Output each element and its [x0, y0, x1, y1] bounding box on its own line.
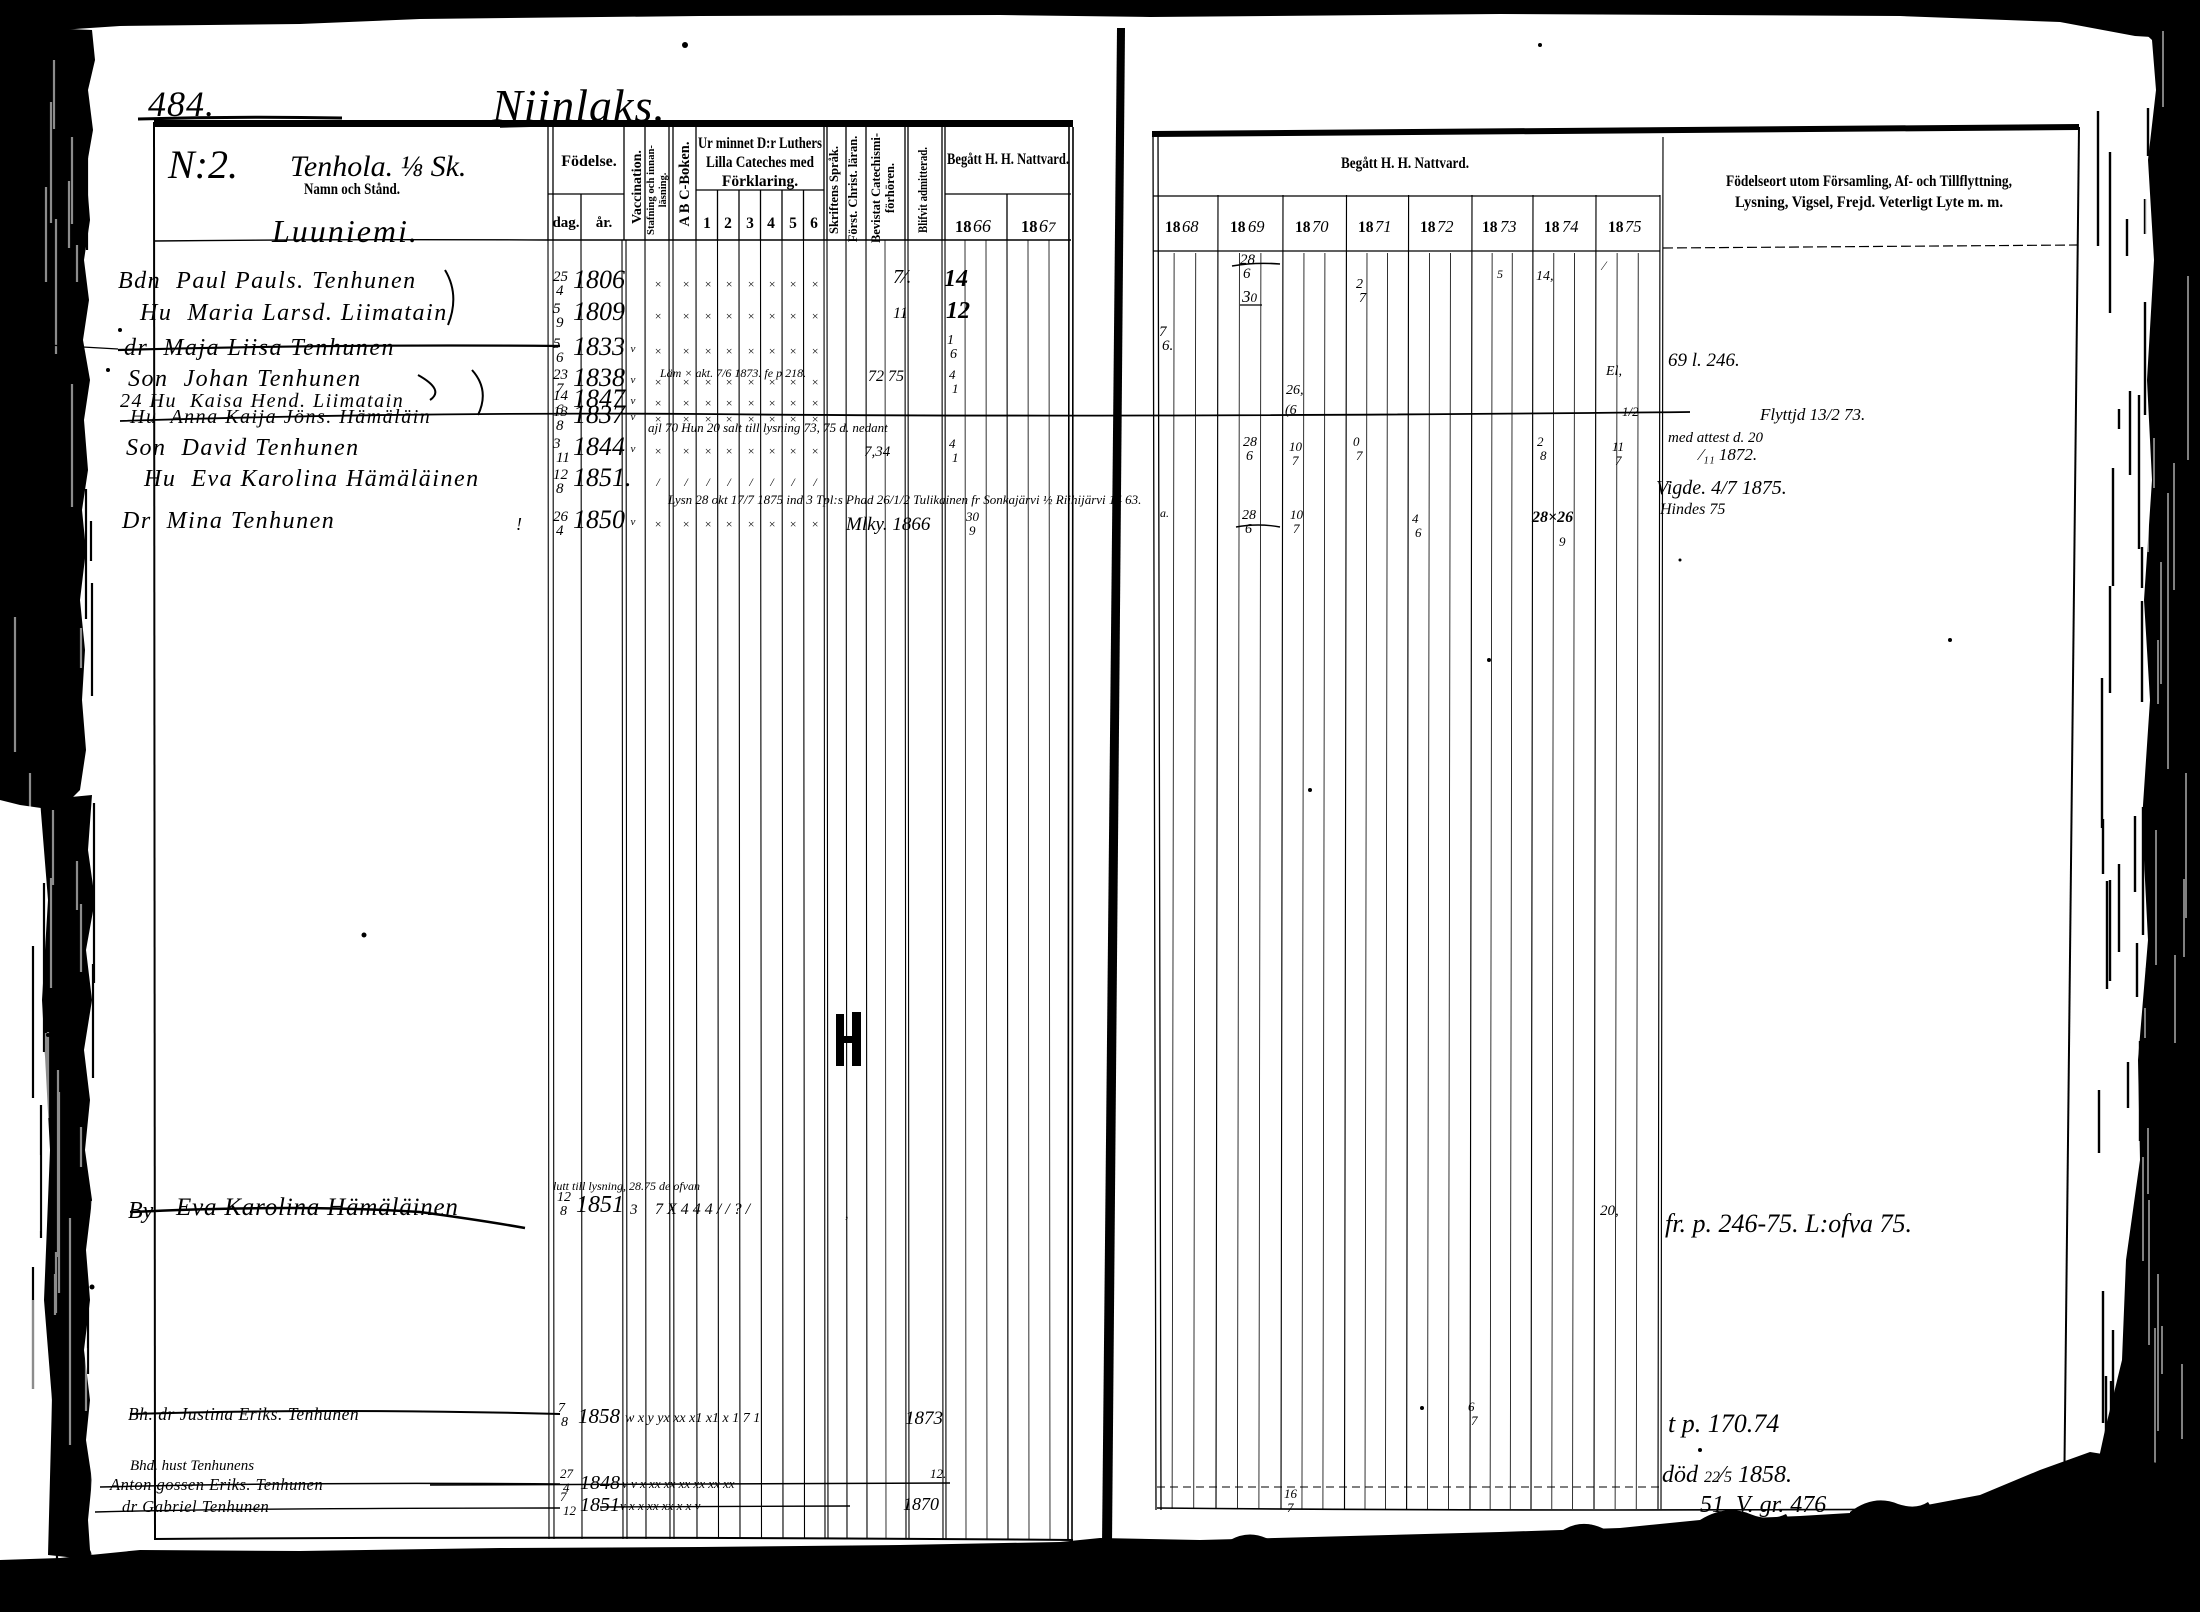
svg-text:förhören.: förhören. — [883, 163, 897, 213]
svg-text:×: × — [725, 444, 733, 458]
svg-text:30: 30 — [965, 509, 980, 524]
svg-text:dr Gabriel Tenhunen: dr Gabriel Tenhunen — [122, 1497, 269, 1516]
svg-text:7: 7 — [1293, 521, 1300, 536]
svg-text:66: 66 — [973, 216, 991, 236]
svg-text:v: v — [631, 443, 636, 455]
svg-text:Lysning, Vigsel, Frejd. Veterl: Lysning, Vigsel, Frejd. Veterligt Lyte m… — [1735, 194, 2003, 211]
svg-text:×: × — [811, 344, 819, 358]
svg-text:A B C-Boken.: A B C-Boken. — [677, 141, 693, 226]
svg-text:v: v — [631, 374, 636, 386]
svg-text:×: × — [747, 444, 755, 458]
svg-text:×: × — [725, 309, 733, 323]
svg-text:×: × — [654, 396, 662, 410]
svg-text:6: 6 — [556, 350, 564, 366]
svg-text:18: 18 — [1021, 217, 1038, 236]
svg-text:6: 6 — [1246, 449, 1253, 464]
svg-text:×: × — [654, 344, 662, 358]
svg-text:72: 72 — [1437, 217, 1454, 236]
svg-text:×: × — [811, 396, 819, 410]
svg-text:×: × — [768, 344, 776, 358]
svg-text:×: × — [654, 277, 662, 291]
svg-text:×: × — [704, 444, 712, 458]
svg-text:Blifvit admitterad.: Blifvit admitterad. — [915, 147, 930, 233]
svg-text:v: v — [631, 411, 636, 423]
svg-text:Son Johan Tenhunen: Son Johan Tenhunen — [128, 366, 362, 392]
svg-text:1873: 1873 — [905, 1408, 943, 1429]
svg-text:4: 4 — [556, 523, 564, 539]
svg-text:Vigde. 4/7 1875.: Vigde. 4/7 1875. — [1656, 477, 1787, 499]
svg-text:12: 12 — [946, 298, 970, 324]
svg-text:×: × — [747, 396, 755, 410]
svg-text:7⁄.: 7⁄. — [893, 266, 911, 288]
svg-text:×: × — [768, 396, 776, 410]
svg-text:×: × — [704, 309, 712, 323]
svg-text:1851: 1851 — [580, 1494, 620, 1516]
svg-text:×: × — [811, 277, 819, 291]
svg-text:10: 10 — [1289, 439, 1303, 454]
svg-text:Först. Christ. läran.: Först. Christ. läran. — [846, 136, 860, 243]
svg-text:Vaccination.: Vaccination. — [630, 150, 645, 224]
svg-text:(6: (6 — [1285, 403, 1297, 418]
svg-text:×: × — [682, 277, 690, 291]
svg-text:14,: 14, — [1536, 269, 1554, 284]
svg-text:×: × — [725, 396, 733, 410]
svg-text:6: 6 — [1243, 266, 1251, 282]
svg-text:×: × — [725, 517, 733, 531]
svg-text:7: 7 — [1292, 453, 1299, 468]
svg-text:30: 30 — [1241, 287, 1258, 306]
svg-text:5: 5 — [1497, 267, 1503, 281]
svg-text:18: 18 — [1295, 219, 1311, 236]
svg-text:1806: 1806 — [573, 265, 625, 294]
svg-text:75: 75 — [1625, 217, 1642, 236]
svg-text:1833: 1833 — [573, 332, 625, 361]
svg-text:11: 11 — [556, 450, 570, 466]
svg-text:69: 69 — [1248, 217, 1265, 236]
svg-text:Hindes 75: Hindes 75 — [1659, 501, 1725, 518]
svg-text:1870: 1870 — [903, 1494, 939, 1514]
svg-text:×: × — [654, 444, 662, 458]
svg-text:68: 68 — [1182, 217, 1199, 236]
svg-text:Läm × akt. 7/6 1873. fe p 218: Läm × akt. 7/6 1873. fe p 218. — [659, 366, 806, 380]
svg-text:0: 0 — [1353, 434, 1360, 449]
svg-text:1851: 1851 — [576, 1192, 624, 1218]
svg-text:v: v — [631, 343, 636, 355]
svg-text:Namn och Stånd.: Namn och Stånd. — [304, 181, 400, 198]
svg-text:×: × — [747, 517, 755, 531]
svg-text:26,: 26, — [1286, 383, 1304, 398]
svg-text:Dr Mina Tenhunen: Dr Mina Tenhunen — [121, 508, 335, 534]
svg-text:27: 27 — [560, 1466, 574, 1481]
svg-text:t p. 170.74: t p. 170.74 — [1668, 1409, 1779, 1438]
svg-text:Ur minnet D:r Luthers: Ur minnet D:r Luthers — [698, 135, 822, 152]
svg-text:Födelseort utom Församling, Af: Födelseort utom Församling, Af- och Till… — [1726, 173, 2012, 190]
svg-text:12: 12 — [563, 1503, 577, 1518]
svg-text:Niinlaks.: Niinlaks. — [491, 80, 666, 131]
svg-text:med attest d. 20: med attest d. 20 — [1668, 430, 1763, 446]
svg-text:18: 18 — [1358, 219, 1374, 236]
svg-text:2: 2 — [1537, 434, 1544, 449]
svg-text:×: × — [682, 344, 690, 358]
svg-text:73: 73 — [1500, 217, 1517, 236]
svg-text:El,: El, — [1605, 364, 1622, 379]
svg-text:5: 5 — [789, 215, 797, 232]
svg-text:Lysn 28 okt 17/7 1875 ind 3 Tp: Lysn 28 okt 17/7 1875 ind 3 Tpl:s Phad 2… — [667, 492, 1141, 507]
svg-text:28: 28 — [1242, 508, 1256, 523]
svg-text:Bhd. hust Tenhunens: Bhd. hust Tenhunens — [130, 1458, 254, 1474]
svg-text:×: × — [768, 444, 776, 458]
svg-text:1: 1 — [952, 450, 959, 465]
svg-text:1/2: 1/2 — [1622, 404, 1639, 419]
svg-text:6: 6 — [1415, 525, 1422, 540]
svg-text:Flyttjd 13/2 73.: Flyttjd 13/2 73. — [1759, 405, 1865, 424]
svg-text:69 l. 246.: 69 l. 246. — [1668, 350, 1740, 371]
svg-text:×: × — [747, 309, 755, 323]
svg-text:Mlky. 1866: Mlky. 1866 — [845, 514, 931, 535]
svg-text:4: 4 — [1412, 511, 1419, 526]
svg-text:×: × — [811, 517, 819, 531]
svg-text:70: 70 — [1312, 217, 1329, 236]
svg-text:,: , — [845, 1207, 849, 1222]
svg-text:7: 7 — [1359, 291, 1367, 306]
svg-text:×: × — [682, 309, 690, 323]
svg-text:4: 4 — [949, 367, 956, 382]
svg-text:18: 18 — [955, 217, 972, 236]
svg-text:×: × — [704, 277, 712, 291]
svg-text:18: 18 — [1482, 219, 1498, 236]
svg-text:9: 9 — [1559, 534, 1566, 549]
svg-text:3: 3 — [629, 1202, 638, 1218]
svg-text:74: 74 — [1562, 217, 1579, 236]
svg-text:10: 10 — [1290, 507, 1304, 522]
svg-text:fr. p. 246-75. L:ofva 75.: fr. p. 246-75. L:ofva 75. — [1665, 1209, 1912, 1238]
svg-text:4: 4 — [767, 215, 775, 232]
svg-text:×: × — [704, 396, 712, 410]
svg-text:6: 6 — [1468, 1399, 1475, 1414]
svg-text:71: 71 — [1375, 217, 1392, 236]
svg-text:7: 7 — [558, 1401, 566, 1416]
svg-text:7 X 4 4 4 / / ? /: 7 X 4 4 4 / / ? / — [655, 1201, 752, 1218]
svg-text:×: × — [789, 444, 797, 458]
svg-text:8: 8 — [561, 1415, 568, 1430]
svg-text:Lilla Cateches med: Lilla Cateches med — [706, 154, 814, 171]
svg-text:51. V. gr. 476: 51. V. gr. 476 — [1700, 1492, 1826, 1518]
svg-text:×: × — [747, 344, 755, 358]
svg-text:×: × — [811, 444, 819, 458]
svg-text:×: × — [682, 517, 690, 531]
svg-text:×: × — [768, 309, 776, 323]
svg-text:4: 4 — [556, 283, 564, 299]
svg-text:28: 28 — [1243, 435, 1257, 450]
svg-text:×: × — [789, 277, 797, 291]
svg-text:Bdn Paul Pauls. Tenhunen: Bdn Paul Pauls. Tenhunen — [118, 268, 417, 294]
svg-text:dag.: dag. — [552, 215, 579, 231]
svg-text:7: 7 — [560, 1489, 567, 1504]
svg-text:7: 7 — [1356, 448, 1363, 463]
svg-text:8: 8 — [560, 1204, 567, 1219]
svg-text:3: 3 — [746, 215, 754, 232]
svg-text:6.: 6. — [1162, 338, 1173, 354]
svg-text:v: v — [631, 395, 636, 407]
svg-text:7,34: 7,34 — [864, 444, 891, 460]
svg-text:Födelse.: Födelse. — [561, 153, 617, 170]
svg-text:år.: år. — [596, 215, 613, 231]
svg-text:v v x xx xx xx xx xx xx: v v x xx xx xx xx xx xx — [622, 1476, 735, 1491]
svg-text:8: 8 — [1540, 448, 1547, 463]
svg-text:Begått H. H. Nattvard.: Begått H. H. Nattvard. — [947, 151, 1069, 168]
svg-text:1: 1 — [952, 381, 959, 396]
svg-text:×: × — [789, 309, 797, 323]
svg-text:72 75: 72 75 — [868, 368, 904, 385]
svg-text:18: 18 — [1230, 219, 1246, 236]
svg-text:×: × — [704, 344, 712, 358]
svg-text:Hu Maria Larsd. Liimatain: Hu Maria Larsd. Liimatain — [139, 300, 448, 326]
svg-text:16: 16 — [1284, 1486, 1298, 1501]
svg-text:w x y yx xx x1 x1 x 1 7 1: w x y yx xx x1 x1 x 1 7 1 — [625, 1411, 760, 1426]
svg-text:lutt till lysning, 28.75 de of: lutt till lysning, 28.75 de ofvan — [553, 1179, 700, 1193]
svg-text:×: × — [789, 517, 797, 531]
svg-text:18: 18 — [1420, 219, 1436, 236]
svg-text:1: 1 — [947, 333, 954, 348]
svg-text:9: 9 — [556, 315, 564, 331]
svg-text:4: 4 — [949, 436, 956, 451]
svg-text:×: × — [682, 444, 690, 458]
svg-text:×: × — [682, 396, 690, 410]
svg-text:8: 8 — [556, 418, 564, 434]
svg-text:×: × — [811, 375, 819, 389]
svg-text:×: × — [654, 517, 662, 531]
svg-text:1850: 1850 — [573, 505, 625, 534]
svg-text:×: × — [768, 277, 776, 291]
svg-text:20,: 20, — [1600, 1203, 1619, 1219]
svg-text:×: × — [654, 309, 662, 323]
svg-text:6: 6 — [1245, 522, 1252, 537]
svg-text:×: × — [704, 517, 712, 531]
svg-text:⁄₁₁ 1872.: ⁄₁₁ 1872. — [1697, 445, 1757, 464]
svg-text:1851.: 1851. — [573, 463, 632, 492]
svg-text:Hu Eva Karolina Hämäläinen: Hu Eva Karolina Hämäläinen — [143, 466, 480, 492]
svg-text:18: 18 — [1165, 219, 1181, 236]
svg-text:Skriftens Språk.: Skriftens Språk. — [826, 146, 841, 234]
svg-text:8: 8 — [556, 481, 564, 497]
svg-text:×: × — [768, 517, 776, 531]
svg-text:7: 7 — [1287, 1500, 1294, 1515]
svg-text:v x x xx xx x x v: v x x xx xx x x v — [620, 1498, 701, 1513]
svg-text:ajl 70 Hun 20 salt till lysn: ajl 70 Hun 20 salt till lysning 73, 75 d… — [648, 420, 888, 435]
svg-text:2: 2 — [1356, 277, 1363, 292]
svg-text:12.: 12. — [930, 1466, 946, 1481]
svg-text:7: 7 — [1615, 453, 1622, 468]
svg-text:N:2.: N:2. — [167, 142, 238, 187]
svg-text:18: 18 — [1608, 219, 1624, 236]
svg-text:Tenhola. ⅛ Sk.: Tenhola. ⅛ Sk. — [290, 150, 466, 183]
svg-text:×: × — [725, 344, 733, 358]
svg-text:6: 6 — [810, 215, 818, 232]
svg-text:11: 11 — [1612, 439, 1624, 454]
svg-text:11: 11 — [893, 305, 908, 322]
svg-text:9: 9 — [969, 523, 976, 538]
svg-text:×: × — [725, 277, 733, 291]
svg-text:Bevistat Catechismi-: Bevistat Catechismi- — [869, 133, 883, 243]
svg-text:×: × — [811, 309, 819, 323]
svg-text:1848: 1848 — [580, 1472, 620, 1494]
svg-text:6: 6 — [950, 347, 957, 362]
svg-text:1: 1 — [703, 215, 711, 232]
svg-text:18: 18 — [1544, 219, 1560, 236]
svg-text:Stafning och innan-: Stafning och innan- — [646, 144, 657, 235]
svg-text:×: × — [789, 344, 797, 358]
svg-text:14: 14 — [944, 266, 968, 292]
svg-text:1858: 1858 — [578, 1404, 621, 1428]
svg-text:1809: 1809 — [573, 297, 625, 326]
svg-text:×: × — [747, 277, 755, 291]
svg-text:v: v — [631, 516, 636, 528]
svg-text:Begått H. H. Nattvard.: Begått H. H. Nattvard. — [1341, 155, 1469, 172]
svg-text:!: ! — [516, 514, 522, 534]
svg-text:28×26: 28×26 — [1531, 509, 1573, 526]
svg-text:2: 2 — [724, 215, 732, 232]
svg-text:Son David Tenhunen: Son David Tenhunen — [126, 435, 360, 461]
svg-text:a.: a. — [1160, 506, 1169, 520]
svg-text:×: × — [789, 396, 797, 410]
svg-text:1844: 1844 — [573, 432, 625, 461]
svg-text:läsning.: läsning. — [658, 172, 669, 207]
svg-text:Förklaring.: Förklaring. — [722, 173, 798, 190]
svg-text:Luuniemi.: Luuniemi. — [271, 213, 419, 249]
svg-text:7: 7 — [1471, 1413, 1478, 1428]
